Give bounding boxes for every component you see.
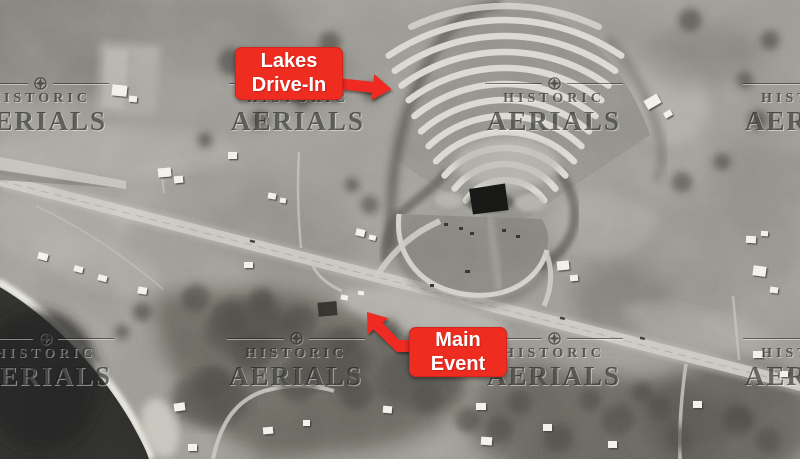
main-event-label-line1: Main (409, 328, 507, 352)
aerial-photo (0, 0, 800, 459)
main-event-label[interactable]: Main Event (409, 327, 507, 377)
lakes-drive-in-label-line2: Drive-In (235, 73, 343, 97)
main-event-label-line2: Event (409, 352, 507, 376)
photo-grain (0, 0, 800, 459)
lakes-drive-in-label-line1: Lakes (235, 49, 343, 73)
lakes-drive-in-label[interactable]: Lakes Drive-In (235, 47, 343, 100)
historic-aerial-image: HISTORIC AERIALS HISTORIC AERIALS HISTOR… (0, 0, 800, 459)
